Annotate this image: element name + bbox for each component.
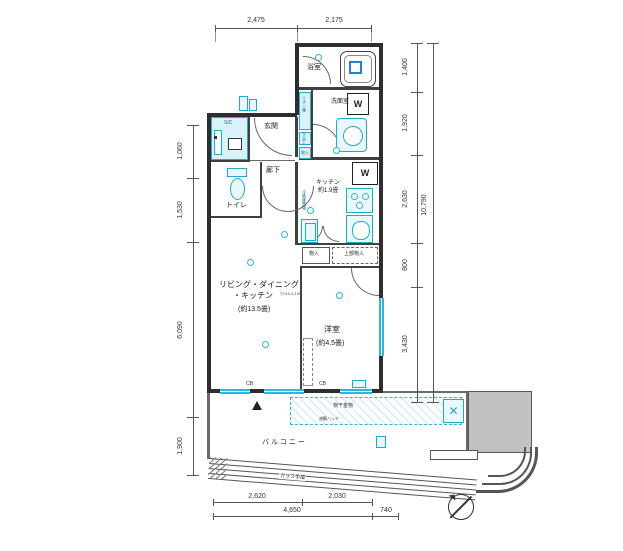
left-tick-1 [187,125,199,126]
dim-right-total: 10,790 [421,185,431,225]
symbol-ldk-2 [262,341,269,348]
wall-bath-top [295,43,383,47]
toilet-bowl [230,178,245,200]
symbol-washroom [333,147,340,154]
wall-balcony-left [207,393,210,459]
evacuation-hatch-box: ✕ [443,399,464,423]
left-tick-3 [187,242,199,243]
bedroom-sliding-door [303,338,313,386]
window-bedroom-right [379,298,384,356]
right-dim-line [417,43,418,402]
left-tick-2 [187,178,199,179]
window-bedroom [340,389,372,394]
dim-top-1: 2,475 [236,17,276,24]
bottom-tick-2 [302,499,303,506]
stove-burner-3 [356,202,363,209]
top-tick-1 [215,25,216,32]
bottom-dim-line2 [213,516,398,517]
dim-right-3: 2,630 [402,179,412,219]
bottom-tick-1 [213,499,214,506]
bedroom-door-arc [351,268,379,296]
washer-label-1: W [354,99,363,109]
wall-sic-bottom [211,160,250,162]
label-cb-2: CB [319,382,326,387]
upper-storage-label: 上部物入 [344,252,364,257]
right-total-tick-1 [427,43,439,44]
sic-label: SIC [224,121,232,126]
label-ldk-line1: リビング・ダイニング [219,281,299,290]
right-tick-6 [411,402,423,403]
kitchen-door-arc-right [323,226,339,242]
wall-balcony-top-right [383,391,468,393]
right-total-tick-2 [427,402,439,403]
bath-symbol [315,54,322,61]
sic-dot [214,136,217,139]
meter-box-2 [249,99,257,111]
dim-left-2: 1,530 [177,190,187,230]
dim-bottom-total: 4,650 [272,507,312,514]
label-laundry-bracket: 物干金物 [332,404,354,409]
label-evac-hatch: 避難ハッチ [318,417,340,421]
label-washroom: 洗面室 [331,99,349,106]
dim-left-4: 1,900 [177,426,187,466]
sic-cabinet-icon [228,138,242,150]
top-tick-3 [371,25,372,32]
linen-closet-label: リネン庫 [302,96,306,126]
bottom-dim-line1 [213,502,372,503]
stove-burner-1 [351,193,358,200]
toilet-door-arc [262,186,288,212]
symbol-bedroom [336,292,343,299]
label-toilet: トイレ [226,202,247,210]
wall-ldk-bedroom [300,266,302,389]
kitchen-sink [352,221,370,240]
right-tick-5 [411,287,423,288]
wall-entrance-right [295,117,298,157]
wall-sic-right [248,117,250,161]
label-bedroom-size: (約4.5畳) [316,340,344,348]
symbol-ldk-1 [247,259,254,266]
neighbor-block [468,391,532,453]
toilet-tank [227,168,247,177]
kitchen-sink-counter [346,215,373,243]
compass-north-arrow [449,495,456,502]
label-balcony: バルコニー [262,439,307,447]
label-fridge: 冷蔵庫置場 [302,190,306,216]
wall-toilet-bottom [211,216,262,218]
label-bedroom: 洋室 [324,326,340,335]
bottom-tick-5 [372,513,373,520]
right-tick-1 [411,43,423,44]
railing-line-3 [209,468,476,490]
terrace-step-bar [430,450,478,460]
left-tick-5 [187,475,199,476]
floor-plan: W W リネン庫 下足入 物入 SIC 物入 上部物入 [0,0,623,551]
balcony-drain [376,436,386,448]
label-kitchen: キッチン [316,180,340,187]
label-hallway: 廊下 [266,167,280,175]
dim-bottom-1: 2,620 [237,493,277,500]
label-ldk-line2: ・キッチン [233,292,273,301]
symbol-kitchen [307,207,314,214]
meter-box-1 [239,96,248,111]
label-kitchen-size: 約1.9畳 [318,188,338,195]
dim-right-5: 3,430 [402,324,412,364]
wall-wash-kitchen [299,157,379,160]
fridge-glyph [305,223,316,241]
wash-basin [336,118,367,152]
top-tick-2 [297,25,298,32]
label-bathroom: 浴室 [307,64,321,72]
right-total-line [433,43,434,402]
dim-right-2: 1,920 [402,103,412,143]
washer-label-2: W [361,168,370,178]
dim-bottom-740: 740 [366,507,406,514]
stove [346,188,373,213]
shoe-closet-label: 下足入 [302,133,306,145]
dim-left-3: 6,090 [177,310,187,350]
bath-unit-icon [349,61,362,74]
label-entrance: 玄関 [264,123,278,131]
symbol-hall [281,231,288,238]
dim-bottom-2: 2,030 [317,493,357,500]
washer-box-2: W [352,162,378,185]
railing-hatch-end [208,457,228,480]
dim-top-2: 2,175 [314,17,354,24]
left-tick-4 [187,417,199,418]
sic-shelf-icon [214,130,222,155]
bedroom-outlet [352,380,366,388]
washer-box-1: W [347,93,369,115]
label-ldk-size: (約13.5畳) [238,306,270,314]
stove-burner-2 [362,193,369,200]
wall-kitchen-bottom [295,243,379,245]
dim-right-4: 800 [402,245,412,285]
dim-left-1: 1,060 [177,131,187,171]
top-dim-line [215,28,372,29]
right-tick-2 [411,92,423,93]
bottom-tick-3 [372,499,373,506]
right-tick-3 [411,155,423,156]
wash-basin-bowl [343,126,363,146]
storage-box-label: 物入 [309,252,319,257]
dim-right-1: 1,400 [402,47,412,87]
direction-marker [252,401,262,410]
storage-small-label: 物入 [301,151,309,155]
window-ldk-2 [264,389,304,394]
entrance-step-line [250,160,295,161]
label-ch-note: ▽CH=2,100 [280,292,301,296]
fridge-box [301,219,318,243]
bottom-tick-6 [398,513,399,520]
window-ldk-1 [220,389,250,394]
compass [448,494,474,520]
label-cb-1: CB [246,382,253,387]
right-tick-4 [411,243,423,244]
bottom-tick-4 [213,513,214,520]
